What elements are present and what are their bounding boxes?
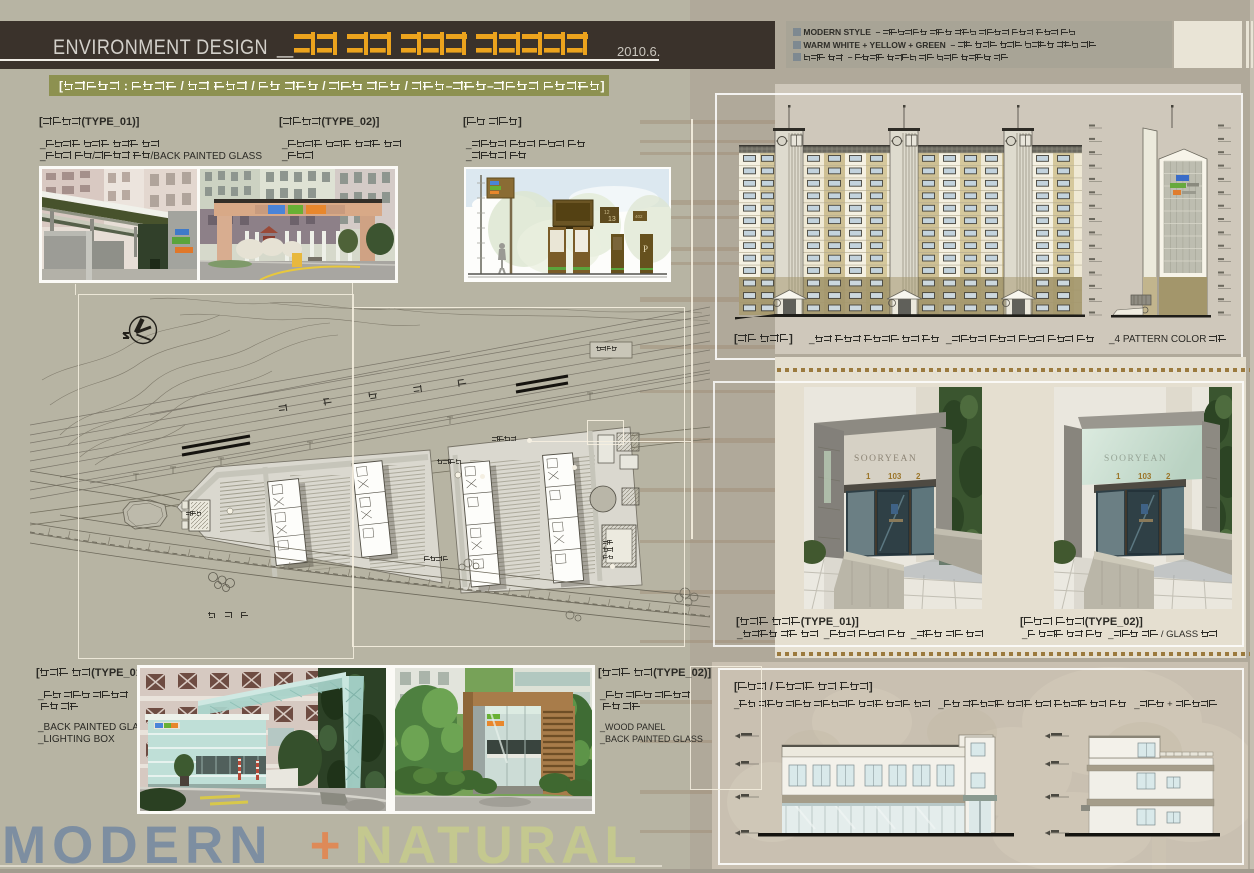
svg-text:103: 103 (888, 472, 902, 481)
svg-text:SOORYEAN: SOORYEAN (1104, 454, 1167, 464)
svg-text:1: 1 (866, 472, 871, 481)
svg-text:13: 13 (608, 216, 616, 223)
svg-text:SOORYEAN: SOORYEAN (854, 454, 917, 464)
svg-text:P: P (643, 244, 648, 254)
svg-text:402: 402 (635, 214, 643, 219)
svg-text:103: 103 (1138, 472, 1152, 481)
svg-text:2: 2 (916, 472, 921, 481)
svg-text:1: 1 (1116, 472, 1121, 481)
svg-text:2: 2 (1166, 472, 1171, 481)
